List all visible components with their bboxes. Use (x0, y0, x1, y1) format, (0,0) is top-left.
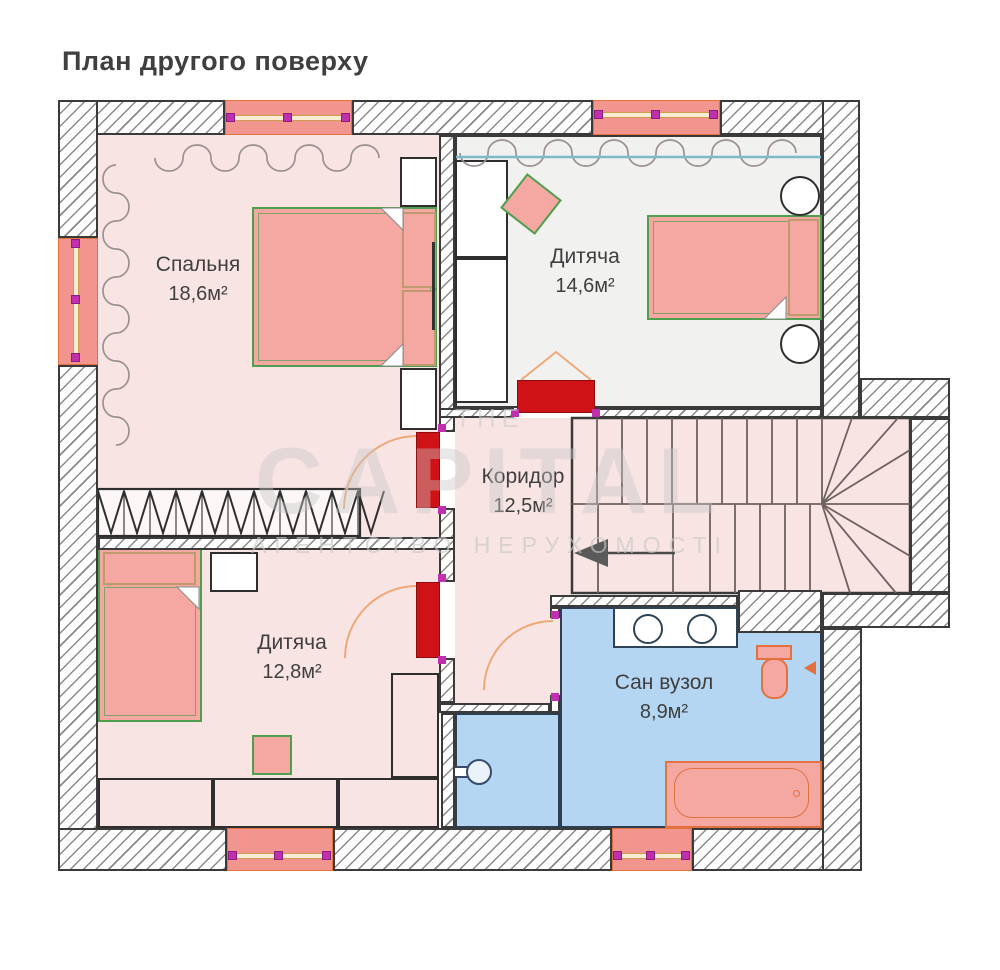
room-floor-corridor (455, 418, 572, 703)
wall-top (352, 100, 593, 135)
window (612, 828, 692, 871)
wall-interior (595, 408, 822, 418)
room-name: Дитяча (257, 628, 327, 658)
window-handle (283, 113, 292, 122)
stool (252, 735, 292, 775)
wall-bottom (58, 828, 227, 871)
window-handle (228, 851, 237, 860)
door-jamb-mark (551, 611, 559, 619)
wall-stair-bay-right (910, 418, 950, 593)
wall-right (822, 100, 860, 418)
room-name: Спальня (156, 250, 240, 280)
room-label-corridor: Коридор 12,5м² (482, 462, 565, 521)
window-handle (646, 851, 655, 860)
window (593, 100, 720, 135)
window-handle (681, 851, 690, 860)
room-label-kids-bottom: Дитяча 12,8м² (257, 628, 327, 687)
wall-left (58, 100, 98, 238)
bathtub-basin (674, 768, 809, 818)
stair-winder-lines (572, 418, 910, 593)
door-jamb-mark (438, 506, 446, 514)
wall-stair-bay-top (860, 378, 950, 418)
wall-interior (441, 713, 455, 828)
floor-plan: План другого поверху (0, 0, 1000, 970)
cabinet-low (338, 778, 439, 828)
room-area: 14,6м² (550, 272, 620, 301)
window-handle (594, 110, 603, 119)
wall-left (58, 365, 98, 871)
stair-direction-arrow (574, 539, 608, 567)
staircase (572, 418, 910, 593)
door-kids-top (517, 380, 595, 413)
bathtub-drain (793, 790, 800, 797)
bed-pillow (788, 219, 819, 316)
window-handle (613, 851, 622, 860)
window (227, 828, 333, 871)
nightstand (400, 157, 437, 207)
room-label-bathroom: Сан вузол 8,9м² (615, 668, 714, 727)
bed-pillow (103, 552, 196, 585)
bed-mattress (104, 587, 196, 716)
door-jamb-mark (511, 409, 519, 417)
wall-interior (439, 703, 550, 713)
pouf-stool (780, 176, 820, 216)
stair-steps (597, 418, 822, 593)
room-name: Сан вузол (615, 668, 714, 698)
wall-interior (439, 135, 455, 432)
door-jamb-mark (551, 693, 559, 701)
room-label-kids-top: Дитяча 14,6м² (550, 242, 620, 301)
nightstand (400, 368, 437, 430)
door-kids-bottom (416, 582, 440, 658)
window-handle (651, 110, 660, 119)
wall-bottom (333, 828, 612, 871)
wardrobe (455, 258, 508, 403)
headboard-line (432, 242, 435, 330)
wall-stair-bay-bottom (822, 593, 950, 628)
door-jamb-mark (438, 656, 446, 664)
single-bed (647, 215, 822, 320)
wall-right (822, 628, 862, 871)
window-handle (226, 113, 235, 122)
window (225, 100, 352, 135)
window-handle (274, 851, 283, 860)
window-handle (322, 851, 331, 860)
room-area: 12,8м² (257, 658, 327, 687)
room-area: 8,9м² (615, 698, 714, 727)
cabinet-low (98, 778, 213, 828)
cabinet-tall (391, 673, 439, 778)
wall-interior (439, 408, 514, 418)
single-bed (98, 547, 202, 722)
sink-basin (687, 614, 717, 644)
wardrobe (455, 160, 508, 258)
bed-pillow (402, 290, 436, 366)
window-handle (709, 110, 718, 119)
wall-bathroom-top (550, 595, 738, 607)
window-handle (71, 295, 80, 304)
door-jamb-mark (438, 574, 446, 582)
sink-counter (613, 607, 738, 648)
room-area: 18,6м² (156, 280, 240, 309)
room-name: Дитяча (550, 242, 620, 272)
sink-basin (633, 614, 663, 644)
shower-head (466, 759, 492, 785)
room-area: 12,5м² (482, 492, 565, 521)
page-title: План другого поверху (62, 46, 369, 77)
room-name: Коридор (482, 462, 565, 492)
desk (210, 552, 258, 592)
cabinet-low (213, 778, 338, 828)
window-handle (71, 353, 80, 362)
room-label-bedroom: Спальня 18,6м² (156, 250, 240, 309)
double-bed (252, 207, 437, 367)
door-jamb-mark (438, 424, 446, 432)
bathtub (665, 761, 822, 828)
window-handle (341, 113, 350, 122)
window-handle (71, 239, 80, 248)
door-jamb-mark (592, 409, 600, 417)
door-bedroom (416, 432, 440, 508)
wall-interior (98, 537, 455, 550)
pouf-stool (780, 324, 820, 364)
wall-interior (439, 658, 455, 703)
wall-duct-block (738, 590, 822, 633)
bed-pillow (402, 212, 436, 288)
window (58, 238, 98, 365)
